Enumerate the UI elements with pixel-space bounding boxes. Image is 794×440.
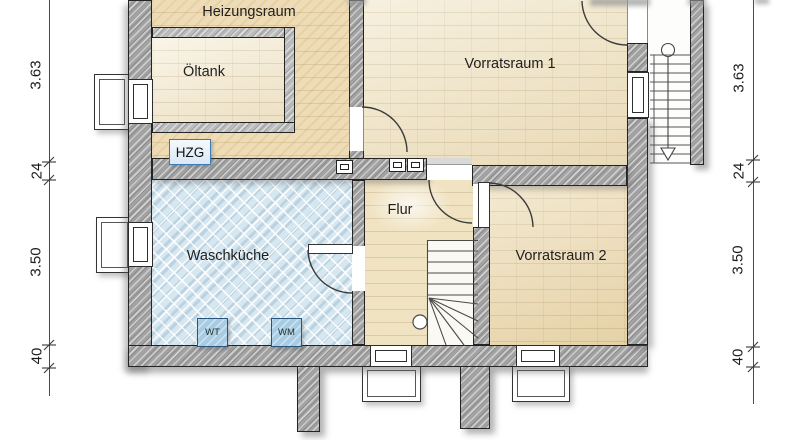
door-opening-exterior-stair	[627, 0, 648, 43]
wall-exterior-stair-retaining	[690, 0, 704, 165]
wall-oeltank-bottom	[152, 122, 295, 133]
wall-flur-vorratsraum2	[473, 227, 490, 345]
room-label-oeltank: Öltank	[183, 64, 225, 80]
dimension-line-right	[753, 0, 754, 404]
window-frame	[632, 77, 644, 113]
wall-cut-smudge	[348, 0, 366, 5]
light-well-wall	[101, 222, 128, 268]
dim-left-363: 3.63	[28, 60, 45, 89]
dim-left-24: 24	[29, 163, 46, 180]
door-leaf-waschkueche	[308, 244, 353, 254]
door-opening-heizungsraum	[349, 107, 364, 151]
light-well-wall	[99, 79, 125, 125]
room-label-waschkueche: Waschküche	[187, 248, 269, 264]
wall-cut-smudge	[590, 0, 650, 6]
meter-box-2	[389, 158, 406, 172]
wall-middle-right	[472, 165, 627, 186]
wall-exterior-stub-left	[297, 366, 320, 432]
exterior-stair-area	[648, 0, 690, 165]
meter-box-door	[393, 162, 402, 168]
light-well-wall	[517, 370, 565, 397]
wall-outer-left	[128, 0, 152, 367]
meter-box-3	[407, 158, 424, 172]
dim-right-24: 24	[731, 163, 748, 180]
room-label-flur: Flur	[388, 202, 413, 218]
wall-waschkueche-flur-lower	[352, 290, 365, 345]
dim-right-350: 3.50	[730, 245, 747, 274]
wall-heizungsraum-vorratsraum1-stub	[349, 150, 364, 159]
wall-cut-smudge	[755, 0, 769, 4]
wall-cut-smudge	[688, 0, 706, 5]
washing-machine-box: WM	[271, 318, 302, 347]
light-well-flur	[362, 365, 421, 402]
window-frame	[521, 350, 555, 362]
door-leaf-vorratsraum2	[478, 182, 490, 228]
door-opening-waschkueche	[352, 246, 365, 291]
dim-left-350: 3.50	[28, 247, 45, 276]
window-frame	[375, 350, 407, 362]
washer-dryer-box: WT	[197, 318, 228, 347]
wall-heizungsraum-vorratsraum1	[349, 0, 364, 108]
window-stairwell-right	[627, 72, 649, 118]
room-floor-oeltank	[152, 38, 284, 122]
wall-oeltank-right	[284, 27, 295, 133]
wall-oeltank-top	[152, 27, 295, 38]
meter-box-door	[340, 164, 349, 170]
window-flur-south	[370, 345, 412, 367]
dim-right-363: 3.63	[731, 63, 748, 92]
window-oeltank	[128, 79, 153, 124]
wall-waschkueche-flur-upper	[352, 180, 365, 247]
window-vorratsraum2-south	[516, 345, 560, 367]
wall-outer-right-upper	[627, 43, 648, 72]
dim-left-40: 40	[29, 348, 46, 365]
dim-right-40: 40	[730, 349, 747, 366]
interior-stair-area	[427, 240, 478, 345]
light-well-vorratsraum2	[512, 365, 570, 402]
room-floor-vorratsraum1	[364, 0, 627, 165]
light-well-oeltank	[94, 74, 130, 130]
meter-box-door	[411, 162, 420, 168]
hzg-badge: HZG	[169, 139, 211, 165]
room-floor-vorratsraum2	[490, 186, 627, 345]
dimension-line-left	[49, 0, 50, 396]
wall-exterior-stub-right	[460, 366, 490, 429]
window-frame	[133, 227, 148, 262]
window-frame	[133, 84, 148, 119]
door-lintel-vorratsraum1-flur	[427, 158, 472, 165]
meter-box-1	[336, 160, 353, 174]
room-label-vorratsraum2: Vorratsraum 2	[515, 248, 606, 264]
wall-outer-right-lower	[627, 118, 648, 345]
light-well-wall	[367, 370, 416, 397]
room-label-vorratsraum1: Vorratsraum 1	[464, 56, 555, 72]
window-waschkueche	[128, 222, 153, 267]
room-label-heizungsraum: Heizungsraum	[202, 4, 296, 20]
floor-plan-canvas: HZG WT WM	[0, 0, 794, 440]
